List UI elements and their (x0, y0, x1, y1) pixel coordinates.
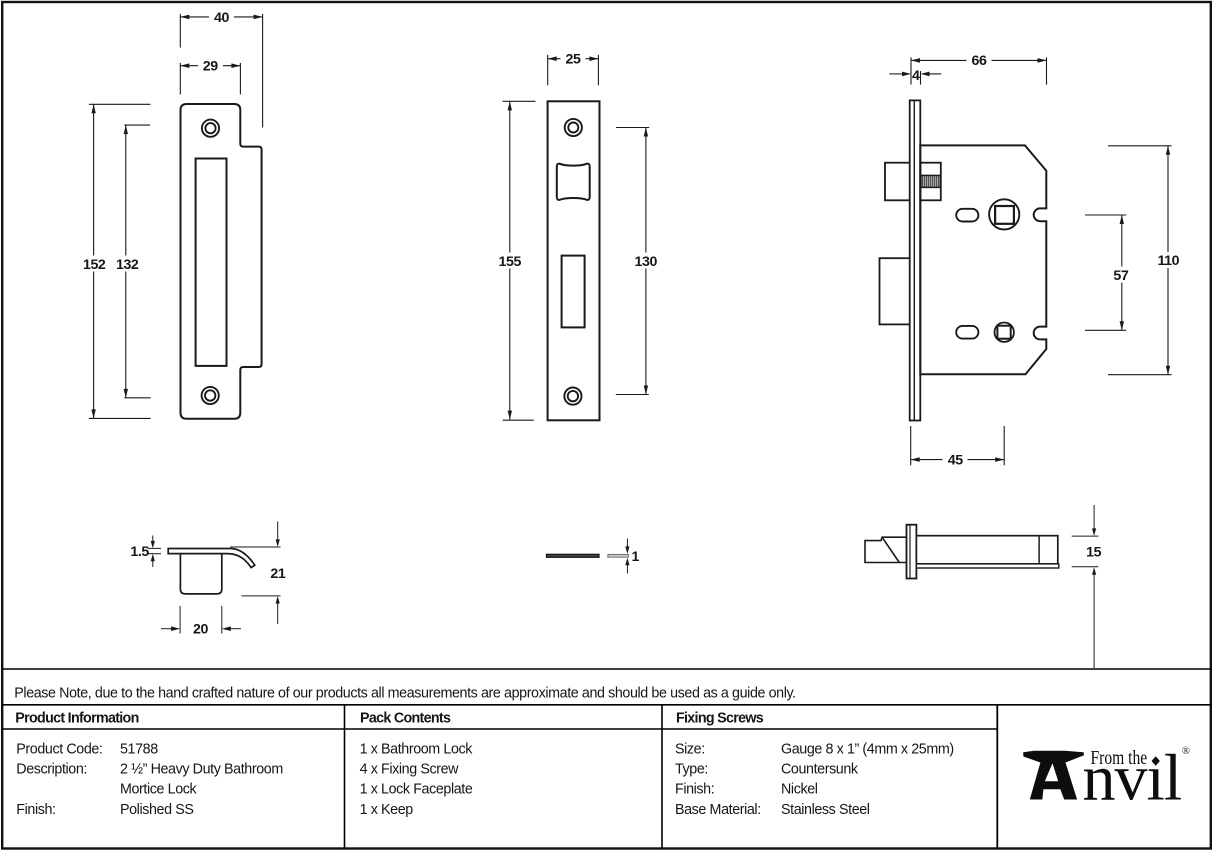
svg-text:21: 21 (270, 566, 285, 582)
svg-text:110: 110 (1157, 253, 1179, 269)
svg-text:25: 25 (566, 52, 581, 68)
svg-text:1 x Lock Faceplate: 1 x Lock Faceplate (360, 782, 473, 798)
svg-text:155: 155 (499, 254, 522, 270)
svg-text:51788: 51788 (120, 741, 158, 757)
svg-text:1.5: 1.5 (130, 544, 149, 560)
svg-text:Nickel: Nickel (781, 782, 818, 798)
svg-text:Fixing Screws: Fixing Screws (676, 711, 764, 727)
svg-text:Product Code:: Product Code: (16, 741, 102, 757)
svg-text:®: ® (1182, 746, 1190, 757)
svg-text:29: 29 (203, 59, 218, 75)
svg-text:Gauge 8 x 1” (4mm x 25mm): Gauge 8 x 1” (4mm x 25mm) (781, 741, 954, 757)
svg-text:4: 4 (912, 68, 920, 84)
svg-text:132: 132 (116, 257, 139, 273)
svg-text:45: 45 (948, 452, 963, 468)
svg-text:Product Information: Product Information (15, 711, 138, 727)
svg-text:2 ½” Heavy Duty Bathroom: 2 ½” Heavy Duty Bathroom (120, 762, 283, 778)
svg-text:Pack Contents: Pack Contents (360, 711, 451, 727)
svg-text:130: 130 (635, 254, 658, 270)
svg-text:15: 15 (1086, 544, 1101, 560)
svg-text:Finish:: Finish: (16, 802, 55, 818)
svg-text:20: 20 (193, 622, 208, 638)
svg-text:Type:: Type: (675, 762, 708, 778)
svg-text:Polished SS: Polished SS (120, 802, 194, 818)
svg-text:nvıl: nvıl (1083, 742, 1182, 815)
svg-text:Finish:: Finish: (675, 782, 714, 798)
svg-text:57: 57 (1113, 268, 1128, 284)
svg-text:1: 1 (632, 549, 640, 565)
svg-text:1 x Keep: 1 x Keep (360, 802, 414, 818)
svg-text:152: 152 (83, 257, 106, 273)
svg-text:Size:: Size: (675, 741, 705, 757)
svg-text:Countersunk: Countersunk (781, 762, 859, 778)
svg-text:4 x Fixing Screw: 4 x Fixing Screw (360, 762, 460, 778)
svg-text:Description:: Description: (16, 762, 87, 778)
svg-text:66: 66 (972, 53, 987, 69)
svg-text:40: 40 (214, 10, 229, 26)
svg-text:Stainless Steel: Stainless Steel (781, 802, 870, 818)
svg-text:Mortice Lock: Mortice Lock (120, 782, 197, 798)
svg-text:Base Material:: Base Material: (675, 802, 761, 818)
svg-text:1 x Bathroom Lock: 1 x Bathroom Lock (360, 741, 474, 757)
svg-text:Please Note, due to the hand c: Please Note, due to the hand crafted nat… (14, 686, 795, 702)
